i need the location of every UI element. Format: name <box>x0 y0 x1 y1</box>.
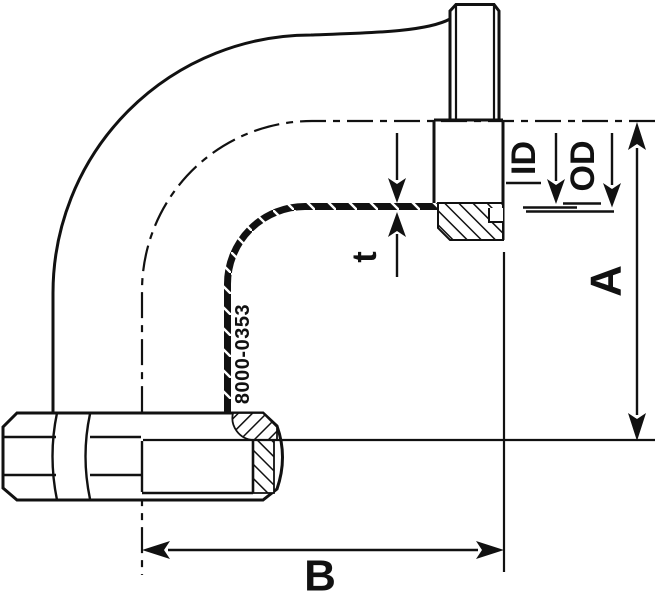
drawing-canvas: A B t ID OD 8000-0353 <box>0 0 660 603</box>
dimension-a-label: A <box>582 265 631 297</box>
liner-flange-section-hatch <box>253 440 274 493</box>
dimension-t-label: t <box>346 251 384 262</box>
thread-relief-notch <box>489 208 503 222</box>
dimension-id-label: ID <box>505 141 543 175</box>
elbow-fitting-technical-drawing: A B t ID OD 8000-0353 <box>0 0 660 603</box>
background <box>0 0 660 603</box>
part-number-label: 8000-0353 <box>232 304 254 404</box>
thread-outline <box>450 5 499 121</box>
dimension-b-label: B <box>304 552 336 601</box>
male-threaded-end <box>450 5 499 121</box>
dimension-od-label: OD <box>564 141 602 192</box>
